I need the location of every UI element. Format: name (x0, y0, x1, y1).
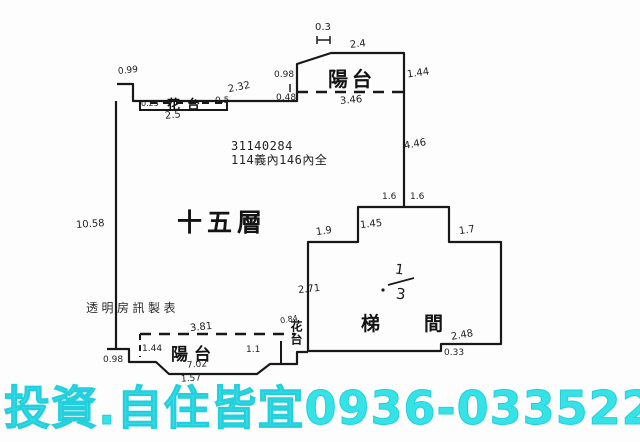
balcony-top-label: 陽台 (328, 63, 376, 92)
measurement-label: 10.58 (76, 218, 105, 231)
measurement-label: 1.1 (246, 345, 260, 355)
measurement-label: 7.02 (187, 359, 208, 370)
measurement-label: 3.46 (340, 94, 363, 107)
measurement-label: 1.6 (382, 192, 396, 202)
measurement-label: 3.81 (189, 321, 212, 334)
measurement-label: 1.6 (410, 192, 424, 202)
footer-phone-number: 0936-033522 (304, 381, 640, 435)
area-note: 114義內146內全 (231, 153, 327, 167)
measurement-label: 0.3 (315, 22, 331, 33)
measurement-label: 1.7 (458, 224, 475, 237)
dimension-tick-03 (317, 36, 330, 44)
measurement-label: 0.98 (103, 355, 123, 365)
measurement-label: 2.71 (297, 283, 320, 296)
registry-note: 31140284 114義內146內全 (231, 139, 327, 167)
measurement-label: 0.98 (274, 70, 294, 80)
fraction-dot (381, 288, 384, 291)
measurement-label: 1.9 (315, 225, 332, 238)
flower-box-bottom-label: 花台 (288, 320, 305, 346)
measurement-label: 0.25 (141, 99, 159, 108)
footer-ad: 投資.自住皆宜0936-033522 (4, 383, 640, 435)
measurement-label: 0.5 (215, 96, 229, 106)
measurement-label: 0.99 (118, 65, 139, 77)
measurement-label: 2.5 (164, 109, 181, 122)
measurement-label: 1.45 (359, 218, 382, 231)
fraction-bar (388, 278, 414, 285)
footer-ad-text: 投資.自住皆宜 (4, 381, 304, 435)
floor-level-label: 十五層 (177, 203, 267, 239)
stair-fraction-denominator: 3 (395, 285, 406, 304)
registry-number: 31140284 (231, 139, 327, 153)
watermark-text: 透明房訊製表 (86, 299, 179, 316)
measurement-label: 2.4 (349, 38, 366, 51)
floor-plan: 陽台 花台 十五層 梯間 陽台 花台 31140284 114義內146內全 透… (0, 0, 640, 442)
measurement-label: 0.48 (276, 93, 296, 103)
measurement-label: 0.33 (444, 348, 464, 358)
measurement-label: 1.44 (142, 344, 162, 354)
